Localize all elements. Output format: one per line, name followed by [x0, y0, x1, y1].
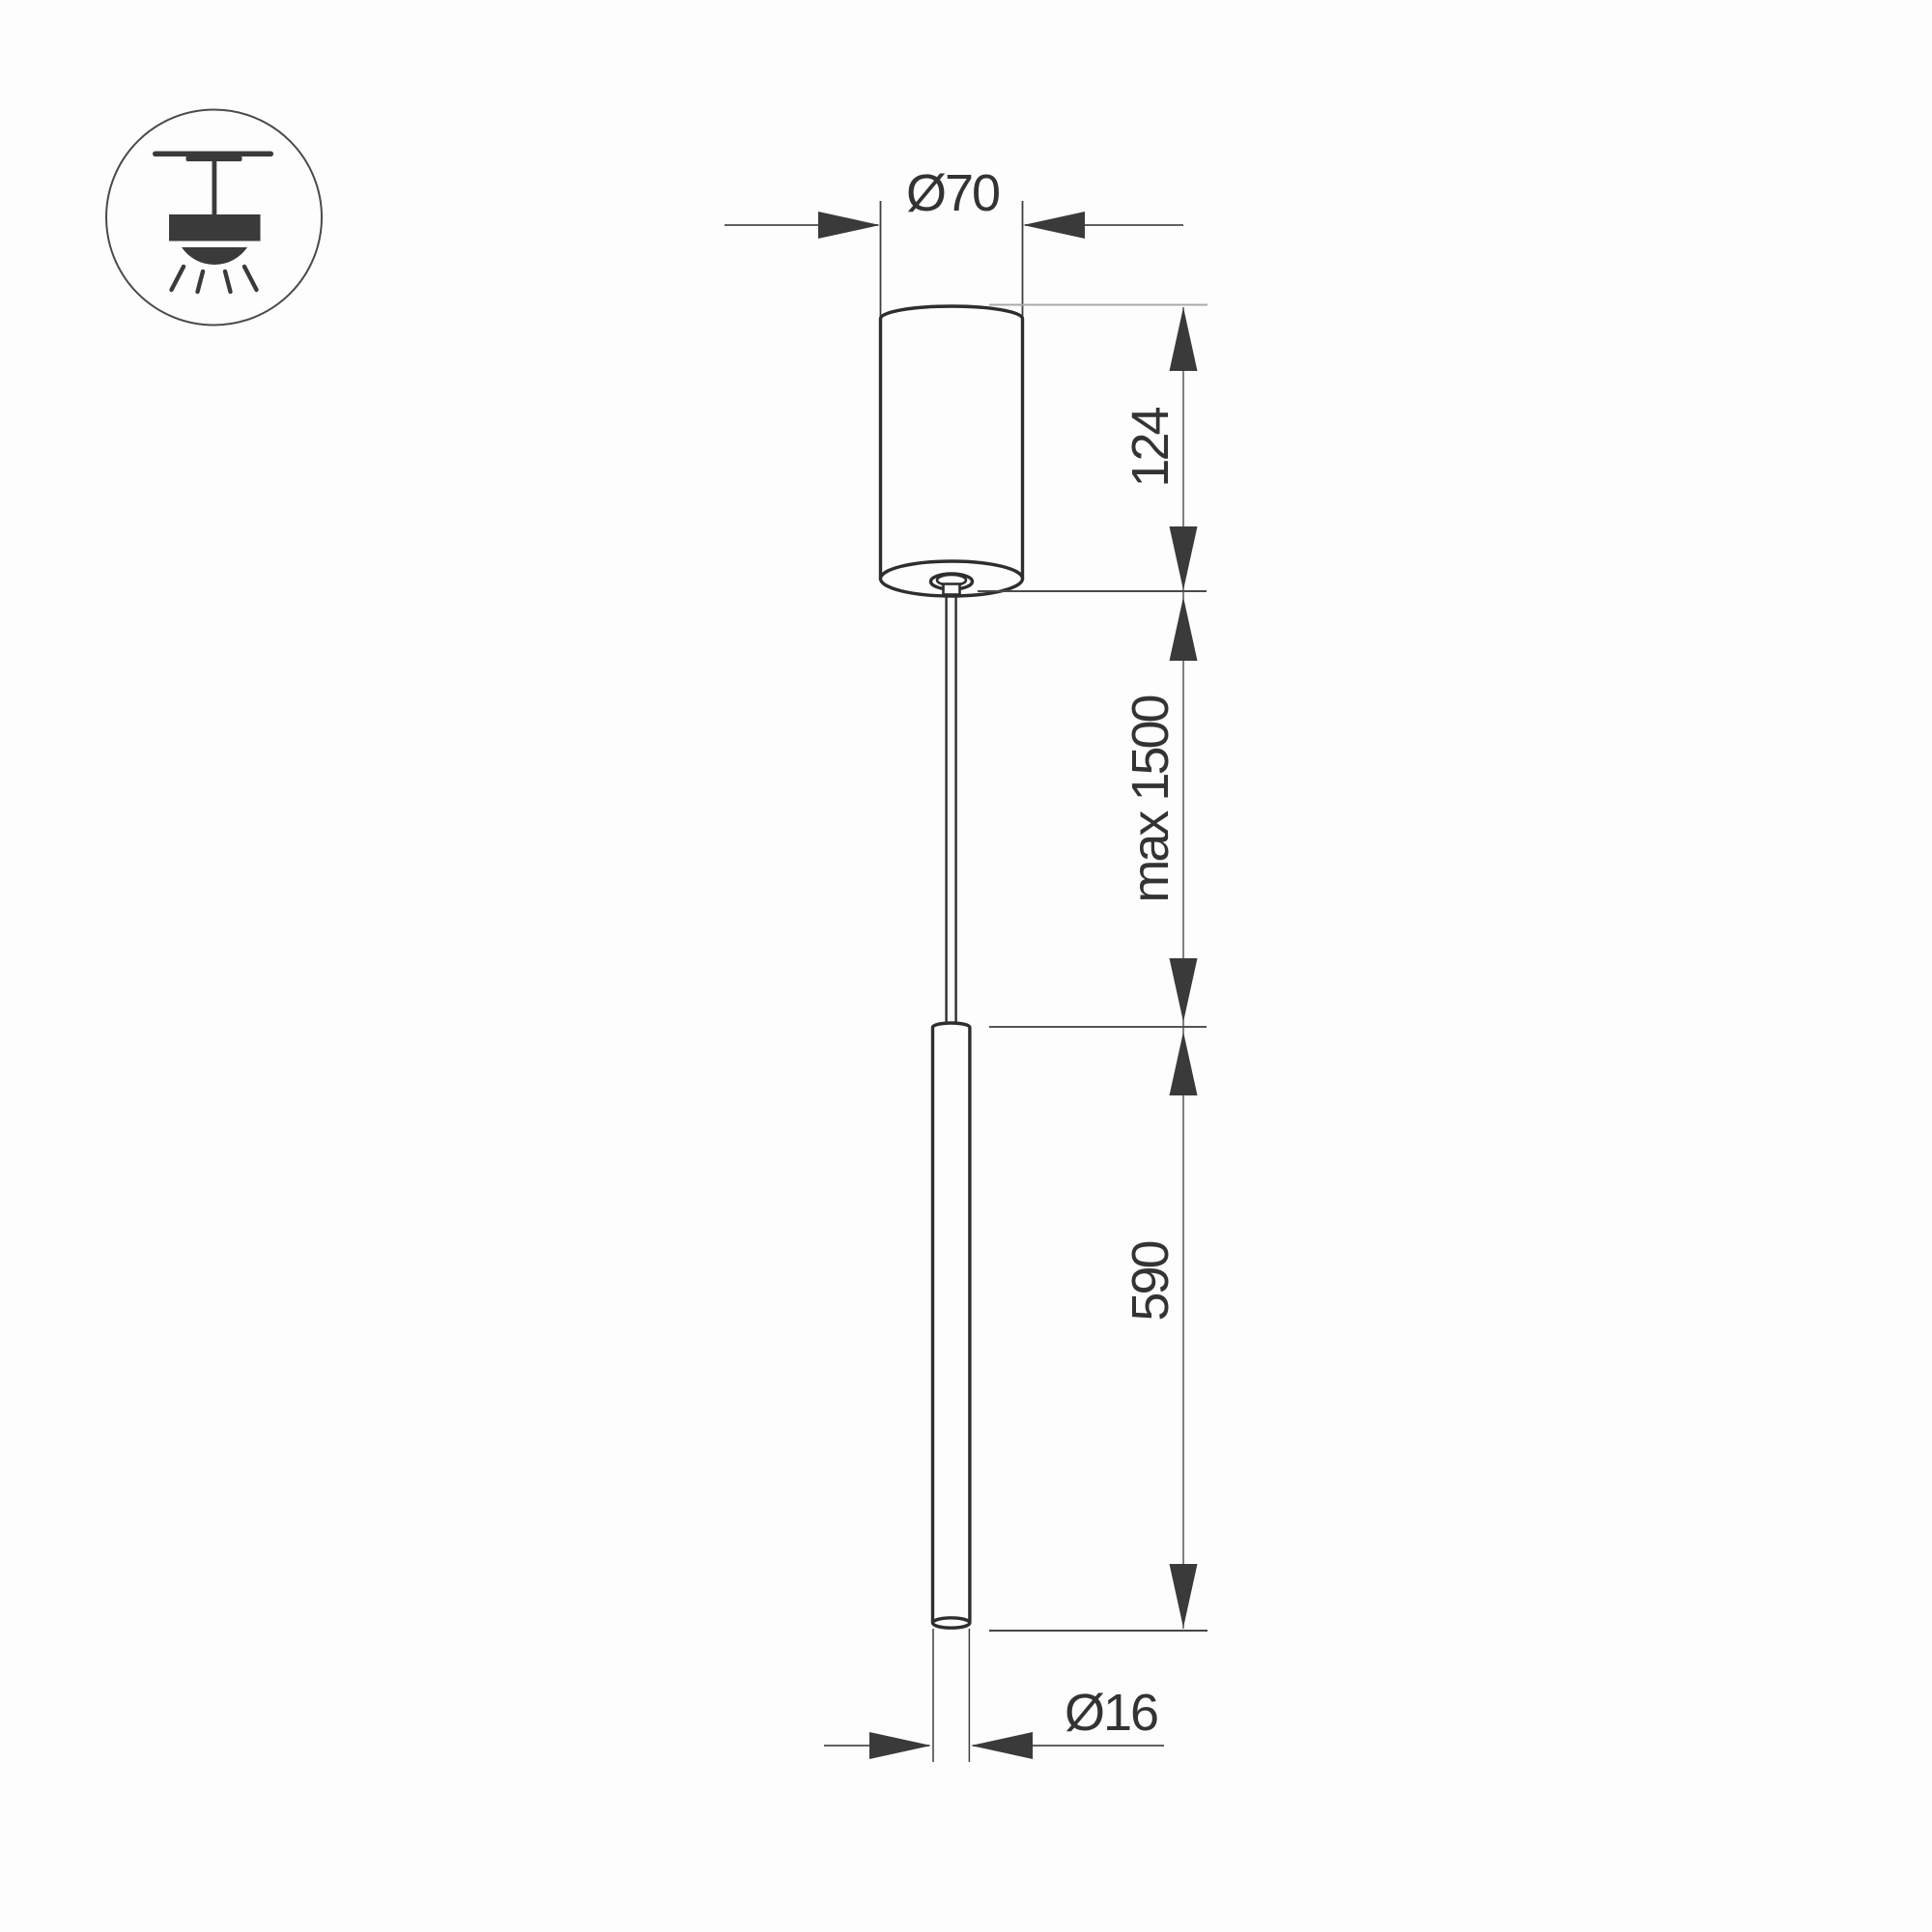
svg-text:Ø70: Ø70: [906, 164, 999, 222]
svg-text:Ø16: Ø16: [1065, 1684, 1157, 1742]
svg-text:124: 124: [1122, 407, 1179, 487]
svg-text:max 1500: max 1500: [1122, 696, 1179, 902]
svg-text:590: 590: [1122, 1241, 1179, 1321]
